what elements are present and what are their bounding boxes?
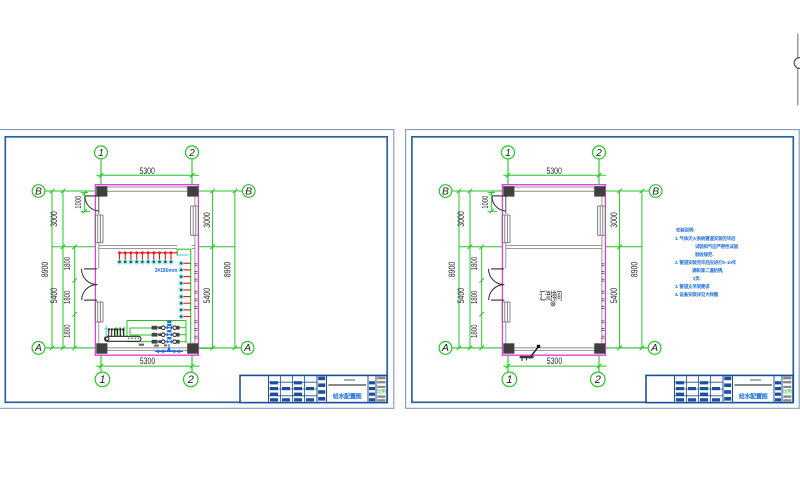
svg-text:8900: 8900: [447, 262, 457, 278]
svg-text:B: B: [35, 186, 42, 197]
svg-text:调和漆二道防锈,: 调和漆二道防锈,: [692, 267, 723, 274]
svg-text:1800: 1800: [62, 257, 72, 271]
svg-text:3000: 3000: [202, 212, 212, 228]
svg-text:5400: 5400: [456, 288, 466, 304]
svg-text:1800: 1800: [469, 257, 479, 271]
svg-text:3. 管道支吊架要求: 3. 管道支吊架要求: [675, 283, 710, 290]
svg-text:1: 1: [506, 374, 512, 386]
svg-text:8900: 8900: [40, 262, 50, 278]
svg-text:4. 设备安装详见大样图: 4. 设备安装详见大样图: [675, 291, 719, 298]
svg-text:1000: 1000: [74, 195, 83, 208]
svg-text:1800: 1800: [62, 290, 72, 304]
svg-text:5400: 5400: [202, 288, 212, 304]
svg-text:1. 气体灭火系统管道安装完毕后: 1. 气体灭火系统管道安装完毕后: [675, 235, 736, 242]
svg-text:2: 2: [188, 148, 195, 159]
svg-text:3000: 3000: [456, 211, 466, 227]
svg-text:B: B: [442, 186, 449, 197]
svg-text:1: 1: [99, 374, 105, 386]
svg-text:安装说明:: 安装说明:: [676, 227, 695, 234]
svg-text:汇流排间: 汇流排间: [539, 288, 562, 302]
svg-text:5300: 5300: [546, 166, 562, 176]
svg-text:1: 1: [505, 148, 511, 159]
svg-text:1800: 1800: [62, 324, 72, 338]
svg-text:A: A: [441, 343, 449, 354]
svg-text:验收规范.: 验收规范.: [695, 251, 713, 258]
svg-text:8900: 8900: [222, 262, 232, 278]
svg-text:5300: 5300: [547, 356, 563, 366]
svg-text:2: 2: [187, 374, 194, 386]
svg-text:给水配置图: 给水配置图: [739, 393, 768, 401]
svg-text:5300: 5300: [139, 166, 155, 176]
svg-text:1: 1: [98, 148, 104, 159]
svg-text:A: A: [34, 343, 42, 354]
svg-text:3000: 3000: [49, 211, 59, 227]
svg-text:3#180mm: 3#180mm: [155, 268, 178, 274]
svg-text:5400: 5400: [609, 288, 619, 304]
svg-text:试验和气压严密性试验: 试验和气压严密性试验: [695, 243, 739, 250]
svg-text:比例: 比例: [377, 388, 387, 395]
svg-text:比例: 比例: [783, 388, 793, 395]
svg-text:2页.: 2页.: [693, 275, 701, 282]
svg-text:A: A: [243, 343, 251, 354]
svg-text:8900: 8900: [629, 262, 639, 278]
svg-text:A: A: [650, 343, 658, 354]
svg-text:5300: 5300: [140, 356, 156, 366]
svg-text:2: 2: [595, 148, 602, 159]
svg-text:1800: 1800: [469, 290, 479, 304]
svg-text:5400: 5400: [49, 288, 59, 304]
svg-text:2. 管道安装完毕后应进行5~10年: 2. 管道安装完毕后应进行5~10年: [675, 259, 737, 266]
svg-text:给水配置图: 给水配置图: [333, 393, 362, 401]
svg-text:B: B: [245, 186, 252, 197]
svg-text:3000: 3000: [609, 212, 619, 228]
svg-text:B: B: [652, 186, 659, 197]
svg-text:1800: 1800: [469, 324, 479, 338]
svg-text:1000: 1000: [481, 195, 490, 208]
svg-text:2: 2: [594, 374, 601, 386]
